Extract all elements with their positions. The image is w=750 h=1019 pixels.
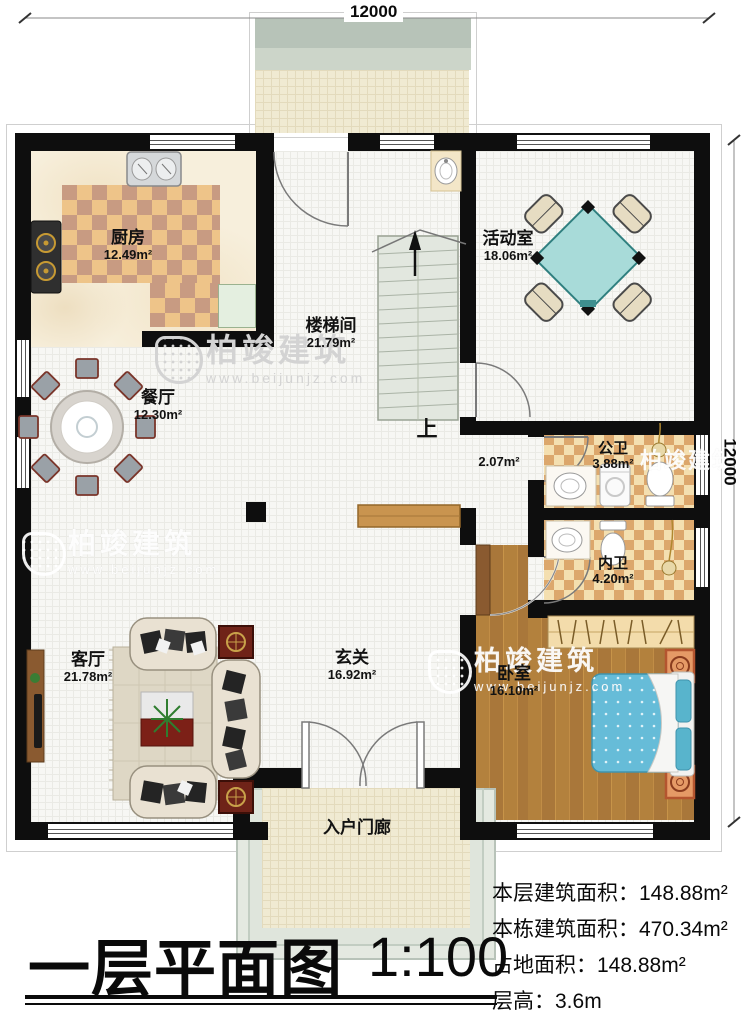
north-door xyxy=(274,152,348,226)
end-table xyxy=(219,781,253,813)
dining-table-set xyxy=(19,359,155,495)
stat-floor-height: 层高：3.6m xyxy=(492,985,602,1015)
stairs-up-label: 上 xyxy=(417,418,438,442)
sofa-bottom xyxy=(130,766,216,818)
stat-building-area: 本栋建筑面积：470.34m² xyxy=(492,913,728,943)
staircase xyxy=(372,230,466,420)
room-label-living: 客厅 21.78m² xyxy=(64,650,112,684)
title-underline-thin xyxy=(25,1003,497,1005)
washbasin xyxy=(431,151,461,191)
stat-floor-area: 本层建筑面积：148.88m² xyxy=(492,877,728,907)
floor-plan-canvas: 柏竣建筑 www.beijunjz.com 柏竣建筑 www.beijunjz.… xyxy=(0,0,750,1019)
room-label-porch: 入户门廊 xyxy=(323,818,391,838)
dimension-right: 12000 xyxy=(720,432,740,491)
entry-double-door xyxy=(302,722,424,788)
kitchen-sink xyxy=(127,152,181,186)
coffee-table xyxy=(141,692,193,746)
stat-footprint-area: 占地面积：148.88m² xyxy=(492,949,686,979)
end-table xyxy=(219,626,253,658)
activity-table-set xyxy=(522,192,654,324)
corridor-area-label: 2.07m² xyxy=(478,455,519,470)
title-underline xyxy=(25,995,497,999)
title-scale: 1:100 xyxy=(368,924,508,989)
foyer-cabinet xyxy=(358,505,460,527)
sofa-right xyxy=(212,660,260,778)
double-bed xyxy=(592,672,694,776)
furniture-layer xyxy=(0,0,750,1019)
room-label-bedroom: 卧室 16.10m² xyxy=(490,664,538,698)
sofa-top xyxy=(130,618,216,670)
room-label-foyer: 玄关 16.92m² xyxy=(328,648,376,682)
wardrobe xyxy=(548,616,694,648)
room-label-stairwell: 楼梯间 21.79m² xyxy=(306,316,357,350)
room-label-public-bath: 公卫 3.88m² xyxy=(592,440,633,472)
activity-room-door xyxy=(476,363,530,417)
dimension-top: 12000 xyxy=(344,2,403,22)
stove xyxy=(31,221,61,293)
room-label-private-bath: 内卫 4.20m² xyxy=(592,555,633,587)
room-label-kitchen: 厨房 12.49m² xyxy=(104,228,152,262)
room-label-activity: 活动室 18.06m² xyxy=(483,229,534,263)
tv-cabinet xyxy=(27,650,44,762)
room-label-dining: 餐厅 12.30m² xyxy=(134,388,182,422)
